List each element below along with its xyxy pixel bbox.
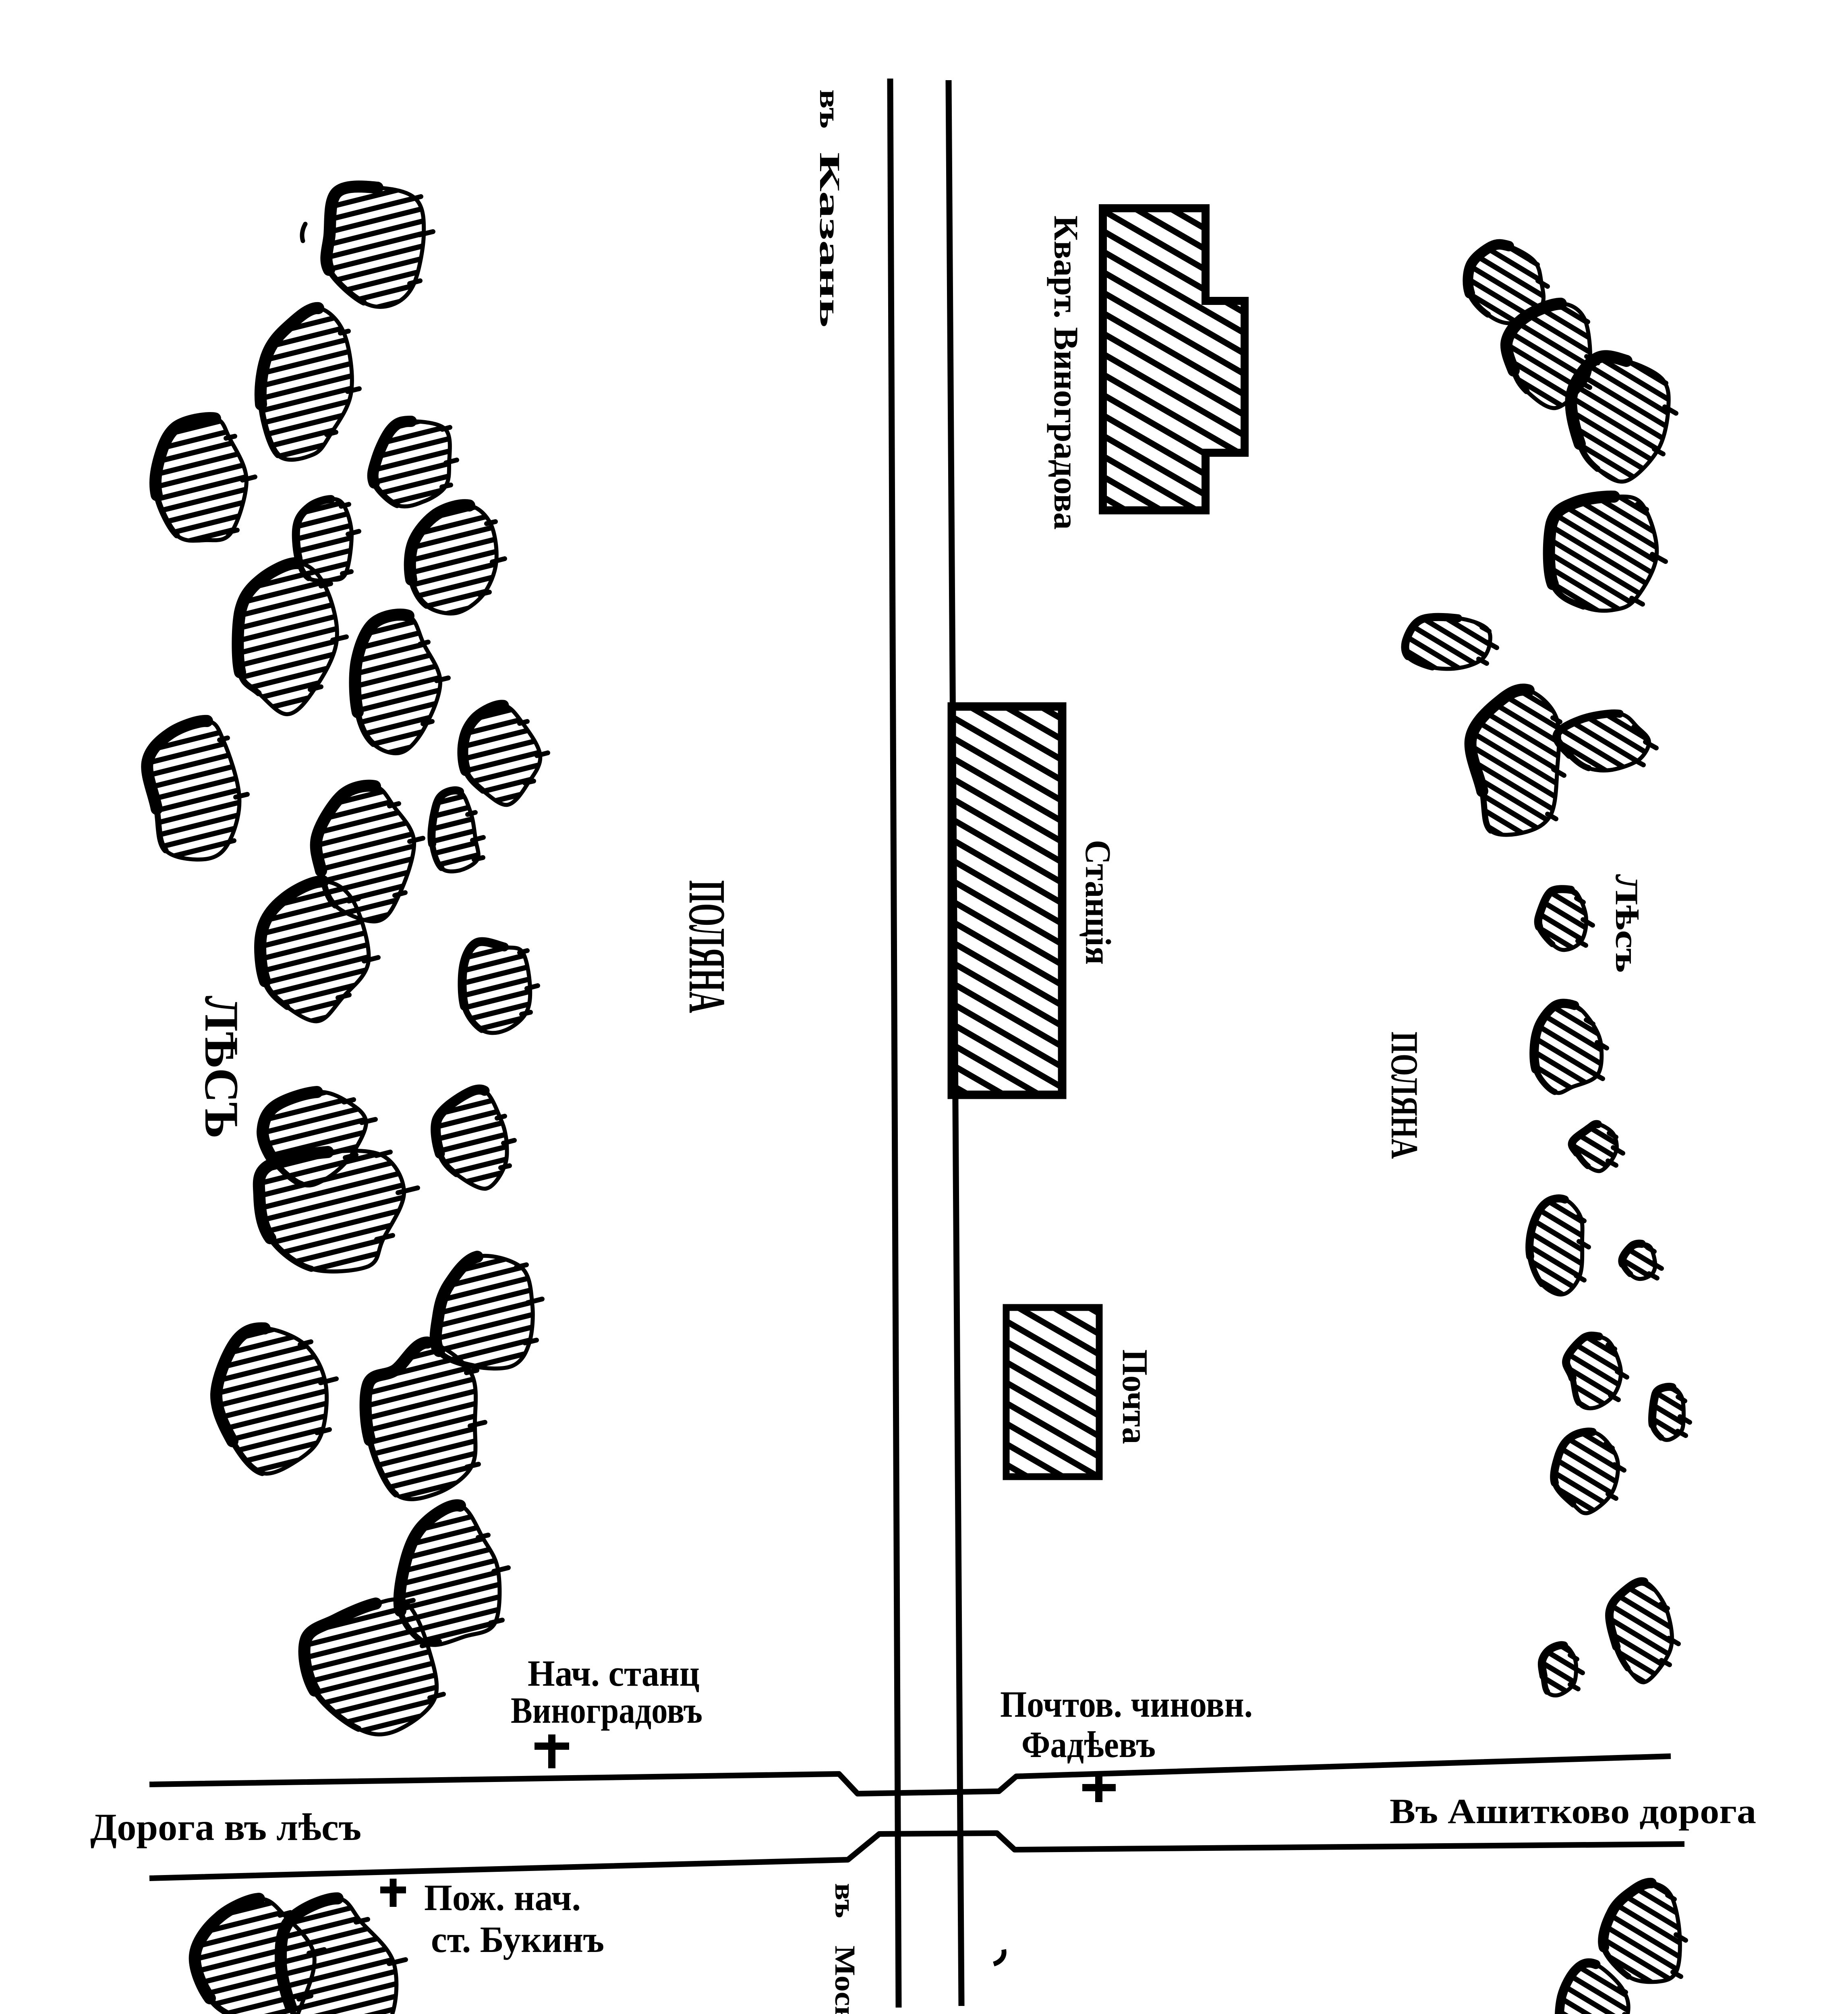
svg-text:Фадѣевъ: Фадѣевъ (1021, 1724, 1156, 1765)
svg-text:ПОЛЯНА: ПОЛЯНА (678, 880, 736, 1013)
svg-text:Виноградовъ: Виноградовъ (511, 1690, 702, 1731)
svg-text:ст. Букинъ: ст. Букинъ (431, 1919, 604, 1960)
svg-text:Кварт. Виноградова: Кварт. Виноградова (1047, 215, 1086, 530)
svg-text:Нач. станц: Нач. станц (528, 1653, 700, 1694)
svg-text:въ: въ (814, 89, 846, 128)
svg-text:Лѣсъ: Лѣсъ (1609, 874, 1644, 973)
svg-text:Почта: Почта (1115, 1349, 1155, 1444)
svg-text:Дорога въ лѣсъ: Дорога въ лѣсъ (90, 1806, 361, 1848)
svg-text:Москву: Москву (829, 1946, 861, 2014)
svg-text:Пож. нач.: Пож. нач. (424, 1877, 581, 1918)
svg-text:Станція: Станція (1078, 840, 1118, 965)
svg-text:Казань: Казань (814, 152, 846, 327)
svg-text:ЛѢСЪ: ЛѢСЪ (195, 996, 249, 1139)
svg-text:Почтов. чиновн.: Почтов. чиновн. (1000, 1684, 1253, 1725)
svg-text:Въ Ашитково дорога: Въ Ашитково дорога (1390, 1792, 1756, 1831)
svg-text:въ: въ (829, 1883, 861, 1918)
svg-text:ПОЛЯНА: ПОЛЯНА (1383, 1032, 1426, 1159)
